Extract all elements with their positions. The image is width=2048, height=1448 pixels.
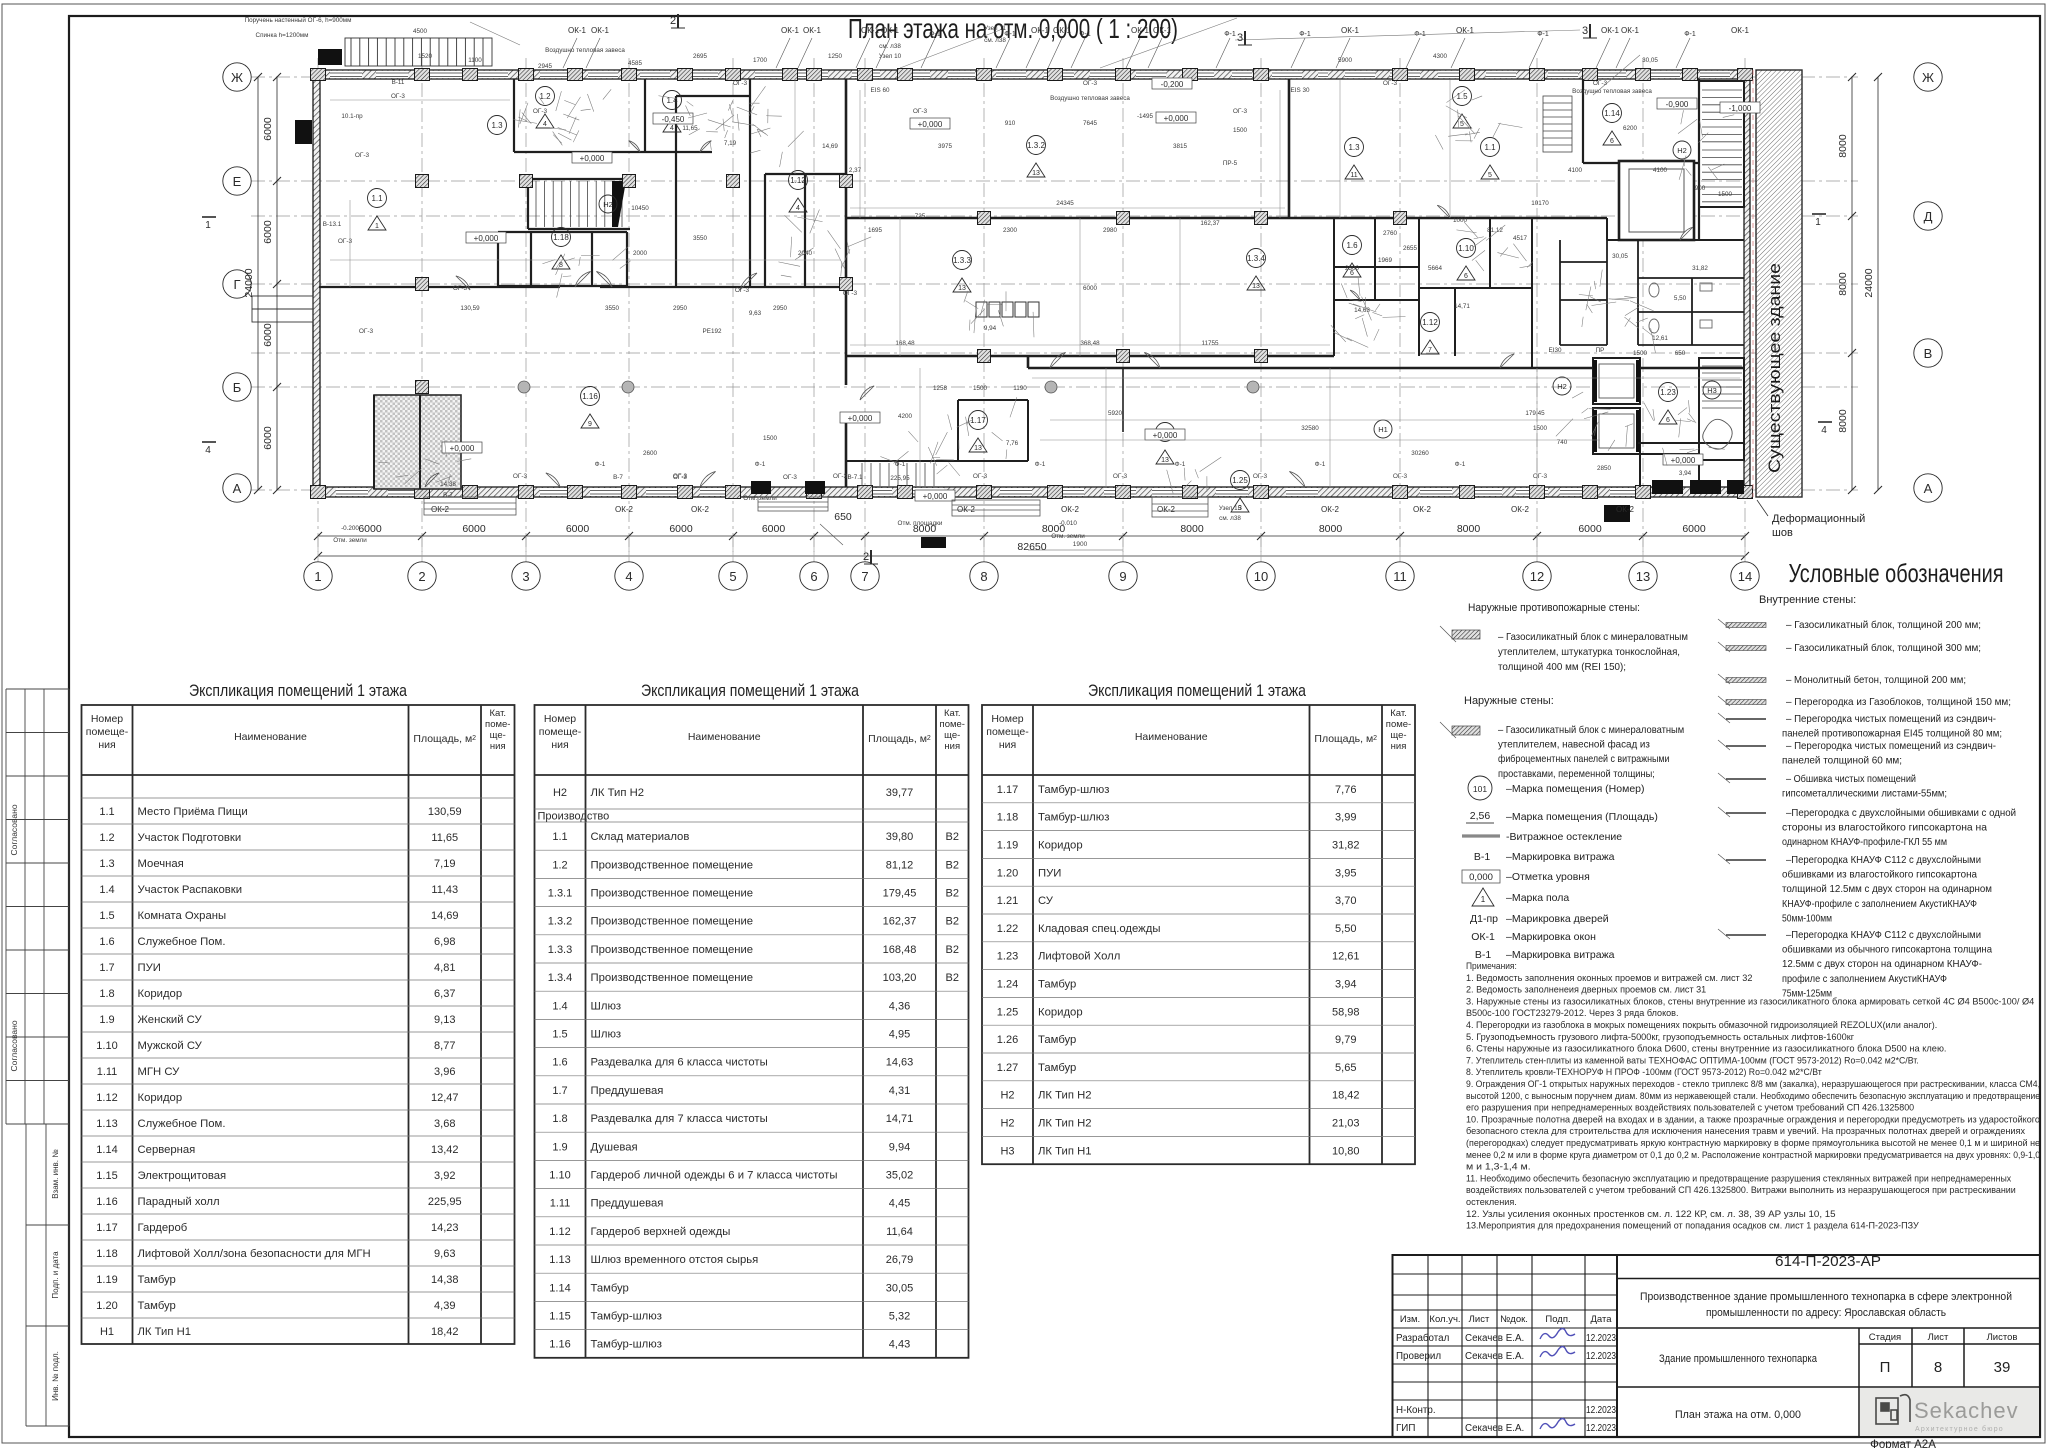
svg-text:3,99: 3,99: [1335, 812, 1356, 824]
svg-text:Наружные противопожарные стены: Наружные противопожарные стены:: [1468, 602, 1640, 614]
svg-text:1.1: 1.1: [99, 806, 114, 818]
svg-text:-Витражное остекление: -Витражное остекление: [1506, 831, 1622, 843]
svg-text:Н2: Н2: [1000, 1090, 1014, 1102]
svg-text:ОГ-3: ОГ-3: [1113, 473, 1128, 480]
svg-text:Н3: Н3: [1707, 386, 1717, 395]
svg-text:Разработал: Разработал: [1396, 1333, 1450, 1344]
svg-text:ще-: ще-: [1390, 730, 1406, 741]
svg-text:12.2023: 12.2023: [1586, 1405, 1616, 1416]
svg-text:+0,000: +0,000: [474, 234, 499, 243]
svg-text:6000: 6000: [262, 426, 274, 450]
svg-text:8000: 8000: [1042, 523, 1066, 535]
svg-text:Раздевалка для 7 класса чистот: Раздевалка для 7 класса чистоты: [591, 1113, 768, 1125]
svg-text:1: 1: [205, 220, 211, 231]
svg-text:5. Грузоподъемность грузового: 5. Грузоподъемность грузового лифта-5000…: [1466, 1032, 1855, 1042]
svg-text:2655: 2655: [1403, 245, 1418, 252]
svg-text:-0.200: -0.200: [341, 525, 359, 532]
svg-text:Ж: Ж: [231, 70, 243, 85]
svg-text:1190: 1190: [1013, 385, 1027, 392]
svg-text:менее 0,2 м или в форме круга: менее 0,2 м или в форме круга диаметром …: [1466, 1150, 2040, 1160]
svg-text:650: 650: [1675, 350, 1686, 357]
svg-text:14,63: 14,63: [886, 1057, 914, 1069]
svg-text:Н3: Н3: [1000, 1145, 1014, 1157]
svg-text:4: 4: [625, 569, 632, 584]
svg-text:4. Перегородки из газоблока в: 4. Перегородки из газоблока в мокрых пом…: [1466, 1020, 1937, 1030]
svg-text:2: 2: [418, 569, 425, 584]
svg-text:м и 1,3-1,4 м.: м и 1,3-1,4 м.: [1466, 1162, 1531, 1172]
svg-text:толщиной 12.5мм с двух сторон: толщиной 12.5мм с двух сторон на одинарн…: [1782, 884, 1992, 895]
svg-text:Ф-1: Ф-1: [1224, 31, 1236, 38]
svg-text:ОК-1: ОК-1: [1731, 26, 1750, 35]
svg-text:Кладовая спец.одежды: Кладовая спец.одежды: [1038, 923, 1160, 935]
svg-text:Площадь, м2: Площадь, м2: [1314, 733, 1377, 745]
svg-text:В-7.1: В-7.1: [847, 474, 863, 481]
svg-text:6: 6: [810, 569, 817, 584]
svg-text:Тамбур-шлюз: Тамбур-шлюз: [1038, 812, 1109, 824]
svg-text:П: П: [1880, 1359, 1891, 1376]
svg-text:4: 4: [1821, 425, 1827, 436]
svg-text:Тамбур: Тамбур: [1038, 1034, 1076, 1046]
svg-text:В2: В2: [946, 972, 959, 984]
svg-text:ОК-1: ОК-1: [1053, 26, 1072, 35]
svg-text:1: 1: [1815, 217, 1821, 228]
svg-text:ОГ-3: ОГ-3: [733, 80, 748, 87]
svg-text:Н2: Н2: [553, 787, 567, 799]
svg-text:ПР: ПР: [1596, 347, 1605, 354]
svg-text:26,79: 26,79: [886, 1254, 914, 1266]
svg-text:одинарном КНАУФ-профиле-ГКЛ 55: одинарном КНАУФ-профиле-ГКЛ 55 мм: [1782, 836, 1947, 848]
svg-text:3550: 3550: [605, 305, 620, 312]
svg-text:ОК-2: ОК-2: [1061, 505, 1080, 514]
svg-text:Участок Распаковки: Участок Распаковки: [138, 884, 243, 896]
svg-text:7,19: 7,19: [434, 858, 455, 870]
svg-text:8. Утеплитель кровли-ТЕХНОРУФ: 8. Утеплитель кровли-ТЕХНОРУФ Н ПРОФ -10…: [1466, 1067, 1822, 1077]
svg-text:–Маркировка окон: –Маркировка окон: [1506, 931, 1596, 943]
svg-text:Воздушно тепловая завеса: Воздушно тепловая завеса: [545, 47, 625, 54]
svg-text:1.5: 1.5: [552, 1029, 567, 1041]
svg-text:В-13.1: В-13.1: [323, 221, 342, 228]
svg-text:-1,000: -1,000: [1729, 104, 1752, 113]
svg-text:А: А: [233, 481, 242, 496]
svg-text:12: 12: [1530, 569, 1544, 584]
svg-text:1969: 1969: [1378, 257, 1393, 264]
svg-text:5,32: 5,32: [889, 1311, 910, 1323]
svg-text:14,38: 14,38: [440, 481, 456, 488]
svg-text:Производственное помещение: Производственное помещение: [591, 888, 754, 900]
svg-text:Тамбур: Тамбур: [1038, 979, 1076, 991]
svg-text:см. л38: см. л38: [879, 43, 901, 50]
svg-text:Д1-пр: Д1-пр: [1470, 913, 1498, 925]
svg-text:82650: 82650: [1017, 541, 1046, 553]
svg-text:Инв. № подл.: Инв. № подл.: [51, 1351, 60, 1401]
svg-text:24345: 24345: [1056, 200, 1074, 207]
svg-text:ОГ-3: ОГ-3: [338, 238, 353, 245]
svg-text:1.17: 1.17: [970, 416, 986, 425]
svg-text:Лифтовой Холл/зона безопасност: Лифтовой Холл/зона безопасности для МГН: [138, 1248, 371, 1260]
svg-text:2695: 2695: [693, 53, 708, 60]
svg-text:ОГ-3: ОГ-3: [533, 108, 548, 115]
svg-text:Шлюз временного отстоя сырья: Шлюз временного отстоя сырья: [591, 1254, 759, 1266]
svg-text:4200: 4200: [898, 413, 913, 420]
svg-text:+0,000: +0,000: [848, 414, 873, 423]
svg-text:–Перегородка КНАУФ С112 с дву: –Перегородка КНАУФ С112 с двухслойными: [1786, 855, 1981, 866]
svg-text:1.4: 1.4: [552, 1000, 567, 1012]
svg-text:– Перегородка чистых помещений: – Перегородка чистых помещений из сэндви…: [1786, 741, 1996, 752]
svg-text:179,45: 179,45: [883, 888, 917, 900]
svg-text:6,98: 6,98: [434, 936, 455, 948]
svg-text:Производственное помещение: Производственное помещение: [591, 916, 754, 928]
svg-text:4585: 4585: [628, 60, 643, 67]
svg-text:ОГ-3: ОГ-3: [1253, 473, 1268, 480]
svg-text:1.10: 1.10: [1458, 244, 1474, 253]
svg-text:Экспликация помещений 1 этажа: Экспликация помещений 1 этажа: [641, 681, 859, 700]
svg-text:9,63: 9,63: [749, 310, 762, 317]
svg-text:1.2: 1.2: [552, 859, 567, 871]
svg-text:1.16: 1.16: [96, 1196, 117, 1208]
svg-text:6: 6: [1610, 138, 1614, 145]
svg-text:–Марка пола: –Марка пола: [1506, 892, 1569, 904]
svg-text:9: 9: [588, 421, 592, 428]
svg-text:ОК-1: ОК-1: [861, 26, 880, 35]
svg-text:8: 8: [980, 569, 987, 584]
svg-text:Ф-1: Ф-1: [1035, 461, 1046, 468]
svg-text:Склад материалов: Склад материалов: [591, 831, 690, 843]
svg-text:1.11: 1.11: [97, 1066, 118, 1078]
svg-text:ОК-2: ОК-2: [1157, 505, 1176, 514]
svg-text:Ф-1: Ф-1: [1299, 31, 1311, 38]
svg-text:ОК-2: ОК-2: [957, 505, 976, 514]
svg-text:ния: ния: [1391, 741, 1407, 752]
svg-text:Н2: Н2: [1557, 382, 1567, 391]
svg-text:1500: 1500: [763, 435, 778, 442]
svg-text:50мм-100мм: 50мм-100мм: [1782, 913, 1832, 924]
svg-text:6200: 6200: [1623, 125, 1638, 132]
svg-text:7: 7: [861, 569, 868, 584]
svg-text:ОК-2: ОК-2: [1616, 505, 1635, 514]
svg-text:1.1: 1.1: [371, 194, 383, 203]
svg-text:ще-: ще-: [490, 730, 506, 741]
svg-text:1.3.4: 1.3.4: [1247, 254, 1265, 263]
svg-text:39,80: 39,80: [886, 831, 914, 843]
svg-text:2600: 2600: [643, 450, 658, 457]
svg-text:ОК-1: ОК-1: [591, 26, 610, 35]
svg-text:6000: 6000: [1083, 285, 1098, 292]
svg-text:9,94: 9,94: [889, 1141, 910, 1153]
svg-text:ОГ-3: ОГ-3: [833, 473, 848, 480]
svg-text:–Марка помещения (Площадь): –Марка помещения (Площадь): [1506, 811, 1658, 823]
svg-text:5: 5: [729, 569, 736, 584]
svg-text:1.23: 1.23: [997, 951, 1018, 963]
svg-text:1.13: 1.13: [96, 1118, 117, 1130]
svg-text:1.25: 1.25: [997, 1006, 1018, 1018]
svg-text:1.10: 1.10: [549, 1170, 570, 1182]
svg-text:7,76: 7,76: [1335, 784, 1356, 796]
svg-text:6000: 6000: [762, 523, 786, 535]
svg-text:6000: 6000: [669, 523, 693, 535]
svg-text:6,37: 6,37: [434, 988, 455, 1000]
svg-text:24000: 24000: [1863, 268, 1875, 297]
svg-text:6000: 6000: [462, 523, 486, 535]
svg-text:8000: 8000: [1837, 134, 1849, 158]
svg-text:11755: 11755: [1201, 340, 1219, 347]
svg-text:650: 650: [834, 511, 852, 523]
svg-text:помеще-: помеще-: [986, 726, 1029, 738]
svg-text:1.12: 1.12: [549, 1226, 570, 1238]
svg-text:1.3.2: 1.3.2: [1027, 141, 1045, 150]
svg-text:1.18: 1.18: [96, 1248, 117, 1260]
svg-text:Женский СУ: Женский СУ: [138, 1014, 203, 1026]
svg-text:ЛК Тип Н2: ЛК Тип Н2: [591, 787, 645, 799]
svg-text:панелей противопожарная ЕI45 т: панелей противопожарная ЕI45 толщиной 80…: [1782, 729, 2002, 740]
svg-text:130,59: 130,59: [428, 806, 462, 818]
svg-text:6000: 6000: [262, 117, 274, 141]
svg-text:1.1: 1.1: [1484, 143, 1496, 152]
svg-text:2300: 2300: [1345, 265, 1360, 272]
svg-text:1.23: 1.23: [1660, 388, 1676, 397]
svg-text:Отм. земли: Отм. земли: [743, 495, 777, 502]
svg-text:103,20: 103,20: [883, 972, 917, 984]
svg-text:Согласовано: Согласовано: [9, 1020, 19, 1071]
svg-text:1.5: 1.5: [99, 910, 114, 922]
svg-text:168,48: 168,48: [883, 944, 917, 956]
svg-text:обшивками из влагостойкого гип: обшивками из влагостойкого гипсокартона: [1782, 869, 1977, 881]
svg-text:Коридор: Коридор: [1038, 1006, 1083, 1018]
svg-text:Коридор: Коридор: [138, 988, 183, 1000]
svg-text:4,81: 4,81: [434, 962, 455, 974]
svg-text:8: 8: [1934, 1359, 1942, 1376]
svg-text:30260: 30260: [1411, 450, 1429, 457]
svg-text:В-7: В-7: [613, 474, 623, 481]
svg-text:5920: 5920: [1108, 410, 1123, 417]
svg-text:ОК-1: ОК-1: [781, 26, 800, 35]
svg-text:Ф-1: Ф-1: [1079, 31, 1091, 38]
svg-text:ОГ-3: ОГ-3: [453, 285, 468, 292]
svg-text:1.2: 1.2: [99, 832, 114, 844]
svg-text:проставками, переменной толщин: проставками, переменной толщины;: [1498, 769, 1655, 780]
svg-text:162,37: 162,37: [1200, 220, 1220, 227]
svg-text:– Газосиликатный блок, толщино: – Газосиликатный блок, толщиной 300 мм;: [1786, 642, 1981, 654]
svg-text:9. Ограждения ОГ-1 открытых на: 9. Ограждения ОГ-1 открытых наружных пер…: [1466, 1079, 2040, 1089]
svg-text:№док.: №док.: [1500, 1314, 1528, 1325]
svg-text:В500с-100 ГОСТ23279-2012. Чере: В500с-100 ГОСТ23279-2012. Через 3 ряда б…: [1466, 1008, 1679, 1018]
svg-text:Н1: Н1: [100, 1326, 114, 1338]
svg-text:2,37: 2,37: [849, 167, 862, 174]
svg-text:162,37: 162,37: [883, 916, 917, 928]
svg-text:13: 13: [974, 445, 982, 452]
svg-text:Проверил: Проверил: [1396, 1351, 1441, 1362]
svg-text:–Перегородка КНАУФ С112 с дву: –Перегородка КНАУФ С112 с двухслойными: [1786, 930, 1981, 941]
svg-text:58,98: 58,98: [1332, 1006, 1360, 1018]
svg-text:2850: 2850: [1597, 465, 1612, 472]
svg-text:2: 2: [670, 15, 676, 27]
svg-text:6. Стены наружные из газосилик: 6. Стены наружные из газосиликатного бло…: [1466, 1044, 1946, 1054]
svg-text:2040: 2040: [798, 250, 813, 257]
svg-text:10. Прозрачные полотна дверей: 10. Прозрачные полотна дверей на входах …: [1466, 1114, 2040, 1124]
svg-text:9,79: 9,79: [1335, 1034, 1356, 1046]
svg-text:1.26: 1.26: [997, 1034, 1018, 1046]
svg-text:Лифтовой Холл: Лифтовой Холл: [1038, 951, 1120, 963]
svg-text:Стадия: Стадия: [1869, 1332, 1901, 1343]
svg-text:Производственное здание промыш: Производственное здание промышленного те…: [1640, 1291, 2012, 1303]
svg-text:12.2023: 12.2023: [1586, 1333, 1616, 1344]
svg-text:1.8: 1.8: [99, 988, 114, 1000]
svg-text:6000: 6000: [1682, 523, 1706, 535]
svg-text:Ф-1: Ф-1: [1684, 31, 1696, 38]
svg-text:фиброцементных панелей с витра: фиброцементных панелей с витражными: [1498, 753, 1670, 765]
svg-text:0,000: 0,000: [1469, 872, 1493, 883]
svg-text:2300: 2300: [1003, 227, 1018, 234]
svg-text:1.7: 1.7: [99, 962, 114, 974]
svg-text:11,65: 11,65: [431, 832, 458, 844]
svg-text:ОК-1: ОК-1: [803, 26, 822, 35]
svg-text:ЕI30: ЕI30: [1549, 347, 1562, 354]
svg-text:2. Ведомость заполненеия дверн: 2. Ведомость заполненеия дверных проемов…: [1466, 985, 1706, 995]
svg-text:14,69: 14,69: [822, 143, 838, 150]
svg-text:помеще-: помеще-: [86, 726, 129, 738]
svg-text:Ф-1: Ф-1: [755, 461, 766, 468]
svg-text:1.17: 1.17: [997, 784, 1018, 796]
svg-text:1.22: 1.22: [997, 923, 1018, 935]
svg-text:Производственное помещение: Производственное помещение: [591, 972, 754, 984]
svg-text:Условные обозначения: Условные обозначения: [1789, 558, 2004, 588]
svg-text:поме-: поме-: [1386, 719, 1411, 730]
svg-text:1.3: 1.3: [491, 121, 503, 130]
svg-text:1.11: 1.11: [550, 1198, 571, 1210]
svg-text:9,13: 9,13: [434, 1014, 455, 1026]
svg-text:1.15: 1.15: [96, 1170, 117, 1182]
svg-text:11,64: 11,64: [886, 1226, 913, 1238]
svg-text:высотой 1200, с выносным поруч: высотой 1200, с выносным поручнем диам. …: [1466, 1091, 2040, 1101]
svg-text:Здание промышленного технопарк: Здание промышленного технопарка: [1659, 1353, 1818, 1365]
svg-text:10,80: 10,80: [1332, 1145, 1360, 1157]
svg-text:1.20: 1.20: [96, 1300, 117, 1312]
svg-text:Спинка h=1200мм: Спинка h=1200мм: [256, 32, 309, 39]
svg-text:А: А: [1924, 481, 1933, 496]
svg-text:32580: 32580: [1301, 425, 1319, 432]
svg-text:3,96: 3,96: [434, 1066, 455, 1078]
svg-text:ще-: ще-: [944, 730, 960, 741]
svg-text:Н2: Н2: [1000, 1118, 1014, 1130]
svg-text:Ф-1: Ф-1: [595, 461, 606, 468]
svg-text:3,95: 3,95: [1335, 867, 1356, 879]
svg-text:14: 14: [1738, 569, 1752, 584]
svg-text:168,48: 168,48: [895, 340, 915, 347]
svg-text:ОК-2: ОК-2: [1511, 505, 1530, 514]
svg-text:1.14: 1.14: [549, 1282, 570, 1294]
svg-text:Коридор: Коридор: [138, 1092, 183, 1104]
svg-text:Дата: Дата: [1590, 1314, 1612, 1325]
svg-text:12. Узлы усиления оконных прос: 12. Узлы усиления оконных простенков см.…: [1466, 1209, 1836, 1219]
svg-text:11: 11: [1350, 172, 1357, 179]
svg-text:Кат.: Кат.: [944, 708, 961, 719]
svg-text:Экспликация помещений 1 этажа: Экспликация помещений 1 этажа: [189, 681, 407, 700]
svg-text:1.7: 1.7: [552, 1085, 567, 1097]
svg-text:1.12: 1.12: [96, 1092, 117, 1104]
svg-text:35,02: 35,02: [886, 1170, 914, 1182]
svg-text:1.3.1: 1.3.1: [548, 888, 572, 900]
svg-text:910: 910: [1005, 120, 1016, 127]
svg-text:4,45: 4,45: [889, 1198, 910, 1210]
svg-text:3: 3: [1582, 25, 1588, 37]
svg-text:1.3: 1.3: [99, 858, 114, 870]
svg-text:81,12: 81,12: [886, 859, 914, 871]
svg-text:1.3.2: 1.3.2: [548, 916, 572, 928]
svg-text:Кол.уч.: Кол.уч.: [1429, 1314, 1460, 1325]
svg-text:МГН СУ: МГН СУ: [138, 1066, 181, 1078]
svg-text:1.27: 1.27: [997, 1062, 1018, 1074]
svg-text:1.12: 1.12: [790, 176, 806, 185]
svg-text:-0,900: -0,900: [1666, 100, 1689, 109]
svg-text:РЕ192: РЕ192: [703, 328, 722, 335]
svg-text:4,95: 4,95: [889, 1029, 910, 1041]
svg-text:5664: 5664: [1428, 265, 1443, 272]
svg-text:Ф-1: Ф-1: [1004, 31, 1016, 38]
svg-text:ОГ-3: ОГ-3: [391, 93, 405, 100]
svg-text:1.15: 1.15: [549, 1311, 570, 1323]
svg-text:Б: Б: [233, 380, 242, 395]
svg-text:4100: 4100: [1568, 167, 1583, 174]
svg-text:ЕIS 60: ЕIS 60: [871, 87, 890, 94]
svg-text:1.6: 1.6: [552, 1057, 567, 1069]
svg-text:Секачев Е.А.: Секачев Е.А.: [1465, 1351, 1524, 1362]
svg-text:Внутренние стены:: Внутренние стены:: [1759, 594, 1856, 606]
svg-text:Н-Контр.: Н-Контр.: [1396, 1405, 1436, 1416]
svg-text:1.1: 1.1: [552, 831, 567, 843]
svg-text:ОК-1: ОК-1: [1341, 26, 1360, 35]
svg-text:5,50: 5,50: [1674, 295, 1687, 302]
svg-text:ОГ-3: ОГ-3: [783, 474, 797, 481]
svg-text:14,71: 14,71: [1454, 303, 1470, 310]
svg-text:3: 3: [1237, 32, 1243, 44]
svg-text:1.3: 1.3: [1348, 143, 1360, 152]
svg-text:3. Наружные стены из газосилик: 3. Наружные стены из газосиликатных блок…: [1466, 996, 2034, 1006]
svg-text:Воздушно тепловая завеса: Воздушно тепловая завеса: [1050, 95, 1130, 102]
svg-text:Узел 15: Узел 15: [1219, 505, 1242, 512]
svg-text:12,47: 12,47: [431, 1092, 459, 1104]
svg-text:обшивками из обычного гипсокар: обшивками из обычного гипсокартона толщи…: [1782, 944, 1992, 956]
svg-text:Гардероб верхней одежды: Гардероб верхней одежды: [591, 1226, 731, 1238]
svg-text:– Газосиликатный блок, толщино: – Газосиликатный блок, толщиной 200 мм;: [1786, 619, 1981, 631]
svg-text:1. Ведомость заполнения оконны: 1. Ведомость заполнения оконных проемов …: [1466, 973, 1752, 983]
svg-text:Гардероб личной одежды 6 и 7 к: Гардероб личной одежды 6 и 7 класса чист…: [591, 1170, 838, 1182]
svg-text:Тамбур-шлюз: Тамбур-шлюз: [591, 1339, 662, 1351]
svg-text:8000: 8000: [1180, 523, 1204, 535]
svg-text:1.9: 1.9: [99, 1014, 114, 1026]
svg-text:безопасного стекла для строите: безопасного стекла для строительства для…: [1466, 1126, 2025, 1136]
svg-text:9,94: 9,94: [984, 325, 997, 332]
svg-text:9: 9: [1119, 569, 1126, 584]
svg-text:6000: 6000: [262, 323, 274, 347]
svg-text:В: В: [1924, 346, 1933, 361]
svg-text:СУ: СУ: [1038, 895, 1054, 907]
svg-text:– Перегородка чистых помещений: – Перегородка чистых помещений из сэндви…: [1786, 714, 1996, 725]
svg-text:1700: 1700: [753, 57, 768, 64]
svg-text:2: 2: [863, 551, 869, 563]
svg-text:ОК-1: ОК-1: [1471, 931, 1495, 943]
svg-text:ЛК Тип Н2: ЛК Тип Н2: [1038, 1118, 1092, 1130]
svg-text:225,95: 225,95: [890, 475, 910, 482]
svg-text:-1495: -1495: [1137, 113, 1154, 120]
svg-text:5: 5: [1460, 121, 1464, 128]
svg-text:6000: 6000: [1578, 523, 1602, 535]
svg-text:130,59: 130,59: [460, 305, 480, 312]
svg-text:1500: 1500: [973, 385, 988, 392]
svg-text:ПР-5: ПР-5: [1223, 160, 1238, 167]
svg-text:8000: 8000: [1457, 523, 1481, 535]
svg-text:6: 6: [1666, 417, 1670, 424]
svg-text:12.2023: 12.2023: [1586, 1351, 1616, 1362]
svg-text:ОК-1: ОК-1: [1601, 26, 1620, 35]
